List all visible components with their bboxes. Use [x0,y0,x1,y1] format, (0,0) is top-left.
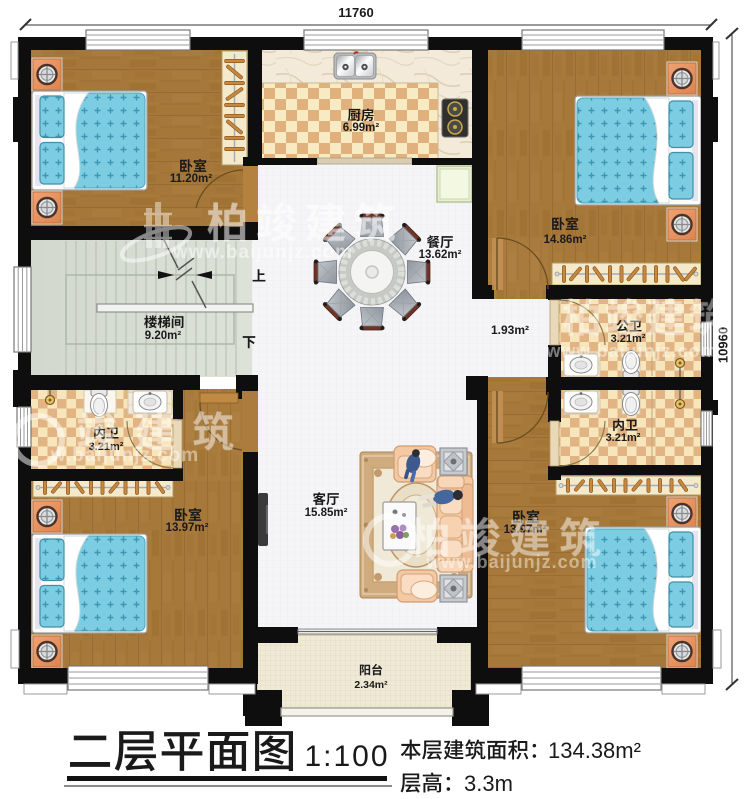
svg-text:9.20m²: 9.20m² [145,330,182,342]
svg-text:2.34m²: 2.34m² [354,679,388,691]
svg-text:11760: 11760 [338,5,373,20]
svg-text:w.baijunjz.com: w.baijunjz.com [50,445,199,466]
svg-text:11.20m²: 11.20m² [170,173,212,185]
svg-text:www.baijunjz.com: www.baijunjz.com [172,242,353,263]
svg-text:1.93m²: 1.93m² [491,323,529,337]
svg-text:15.85m²: 15.85m² [305,507,348,519]
svg-text:3.21m²: 3.21m² [606,432,641,444]
svg-text:3.3m: 3.3m [464,771,513,796]
svg-text:www.baijunjz.com: www.baijunjz.com [425,552,597,572]
svg-text:14.86m²: 14.86m² [544,234,587,246]
svg-text:13.97m²: 13.97m² [166,522,209,534]
svg-text:6.99m²: 6.99m² [343,122,380,134]
svg-text:13.62m²: 13.62m² [419,249,462,261]
svg-text:www.baijunjz.com: www.baijunjz.com [545,341,717,361]
svg-text:1:100: 1:100 [304,740,389,773]
svg-text:134.38m²: 134.38m² [548,738,641,763]
